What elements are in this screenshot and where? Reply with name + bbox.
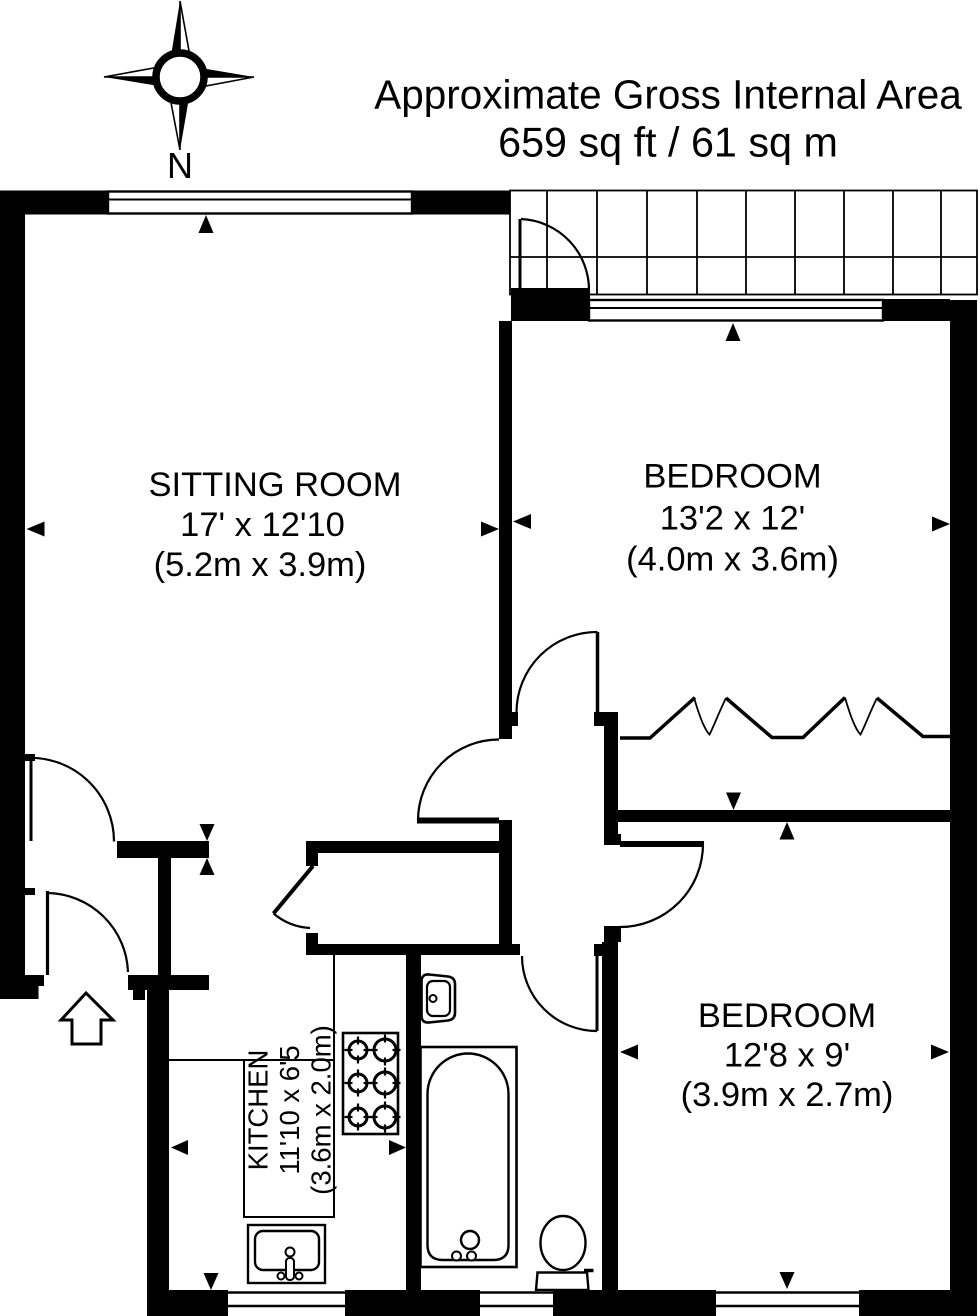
svg-text:11'10 x 6'5: 11'10 x 6'5 [274,1045,305,1174]
svg-text:17' x 12'10: 17' x 12'10 [180,506,345,544]
svg-text:(3.6m x 2.0m): (3.6m x 2.0m) [306,1025,337,1195]
svg-text:SITTING ROOM: SITTING ROOM [149,466,402,504]
svg-text:659 sq ft / 61 sq m: 659 sq ft / 61 sq m [498,120,838,166]
svg-text:KITCHEN: KITCHEN [243,1050,274,1171]
svg-text:13'2 x 12': 13'2 x 12' [660,500,806,538]
svg-text:12'8 x 9': 12'8 x 9' [724,1037,850,1075]
svg-text:(5.2m x 3.9m): (5.2m x 3.9m) [154,546,367,584]
svg-text:Approximate Gross Internal Are: Approximate Gross Internal Area [374,72,962,118]
svg-text:BEDROOM: BEDROOM [698,997,876,1035]
svg-text:N: N [167,145,193,186]
svg-text:BEDROOM: BEDROOM [643,458,821,496]
svg-text:(4.0m x 3.6m): (4.0m x 3.6m) [626,541,839,579]
svg-text:(3.9m x 2.7m): (3.9m x 2.7m) [681,1076,894,1114]
